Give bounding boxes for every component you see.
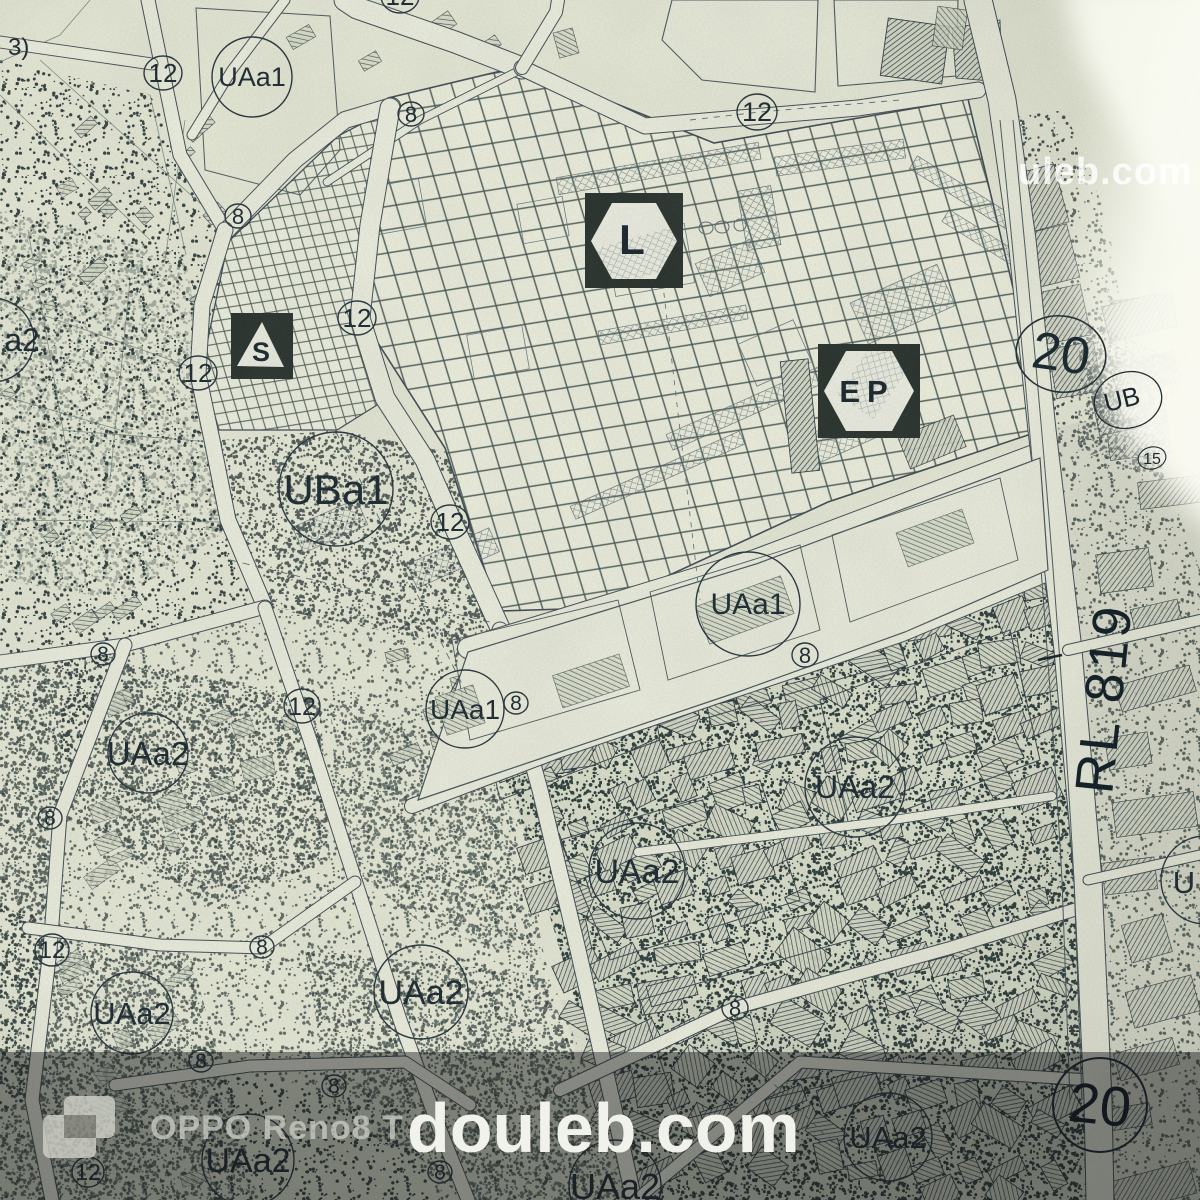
svg-text:UAa1: UAa1	[710, 588, 785, 621]
svg-text:12: 12	[343, 303, 372, 333]
svg-text:12: 12	[386, 0, 415, 11]
svg-text:UAa2: UAa2	[378, 974, 463, 1012]
svg-text:uleb.com: uleb.com	[1018, 151, 1193, 193]
svg-text:12: 12	[149, 58, 178, 88]
svg-text:12: 12	[39, 937, 66, 964]
svg-text:3): 3)	[8, 34, 29, 61]
svg-text:12: 12	[288, 693, 316, 721]
svg-text:UAa1: UAa1	[430, 694, 500, 725]
svg-text:12: 12	[436, 507, 465, 537]
svg-text:20: 20	[1028, 321, 1093, 386]
svg-text:8: 8	[256, 936, 268, 959]
svg-text:douleb.com: douleb.com	[407, 1089, 800, 1167]
svg-text:12: 12	[742, 97, 772, 127]
svg-text:UAa2: UAa2	[93, 996, 171, 1031]
svg-text:UAa2: UAa2	[815, 769, 895, 805]
svg-text:a2: a2	[4, 322, 40, 358]
svg-text:8: 8	[799, 643, 811, 668]
svg-text:UAa1: UAa1	[218, 62, 286, 92]
svg-text:8: 8	[44, 807, 56, 830]
svg-text:15: 15	[1143, 451, 1161, 468]
svg-text:UAa2: UAa2	[594, 853, 679, 891]
svg-text:8: 8	[405, 102, 417, 127]
svg-text:8: 8	[97, 643, 109, 666]
svg-text:U: U	[1173, 865, 1195, 900]
svg-text:8: 8	[232, 204, 244, 229]
svg-text:8: 8	[510, 692, 522, 715]
svg-text:UBa1: UBa1	[283, 466, 388, 513]
svg-text:OPPO Reno8 T: OPPO Reno8 T	[150, 1109, 404, 1147]
svg-text:8: 8	[729, 996, 741, 1021]
svg-text:UAa2: UAa2	[107, 735, 190, 772]
svg-text:12: 12	[184, 358, 213, 388]
